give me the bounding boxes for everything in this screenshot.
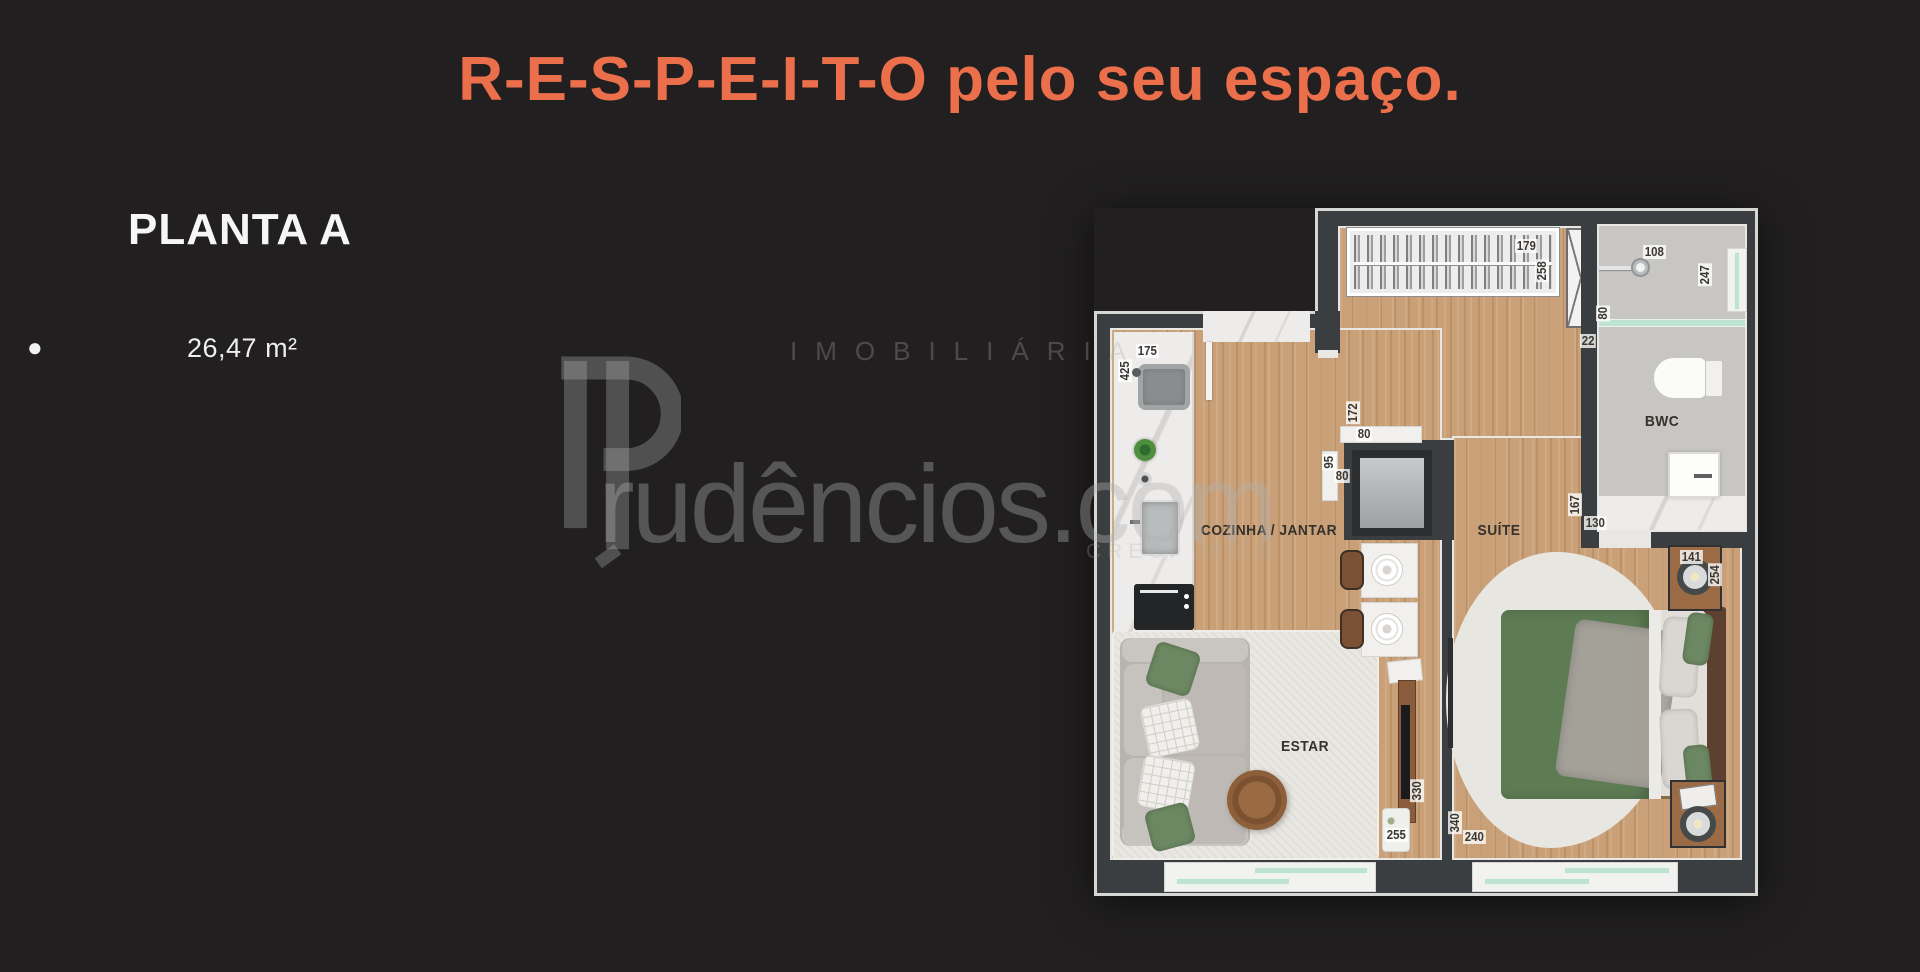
entry-floor: [1203, 311, 1310, 342]
nightstand: [1670, 780, 1726, 848]
window-glass: [1565, 868, 1669, 873]
vanity-sink-icon: [1668, 452, 1720, 498]
microwave-knob: [1184, 604, 1189, 609]
entry-door-leaf: [1206, 342, 1212, 400]
wall-stub: [1315, 311, 1340, 353]
plate-icon: [1371, 554, 1403, 586]
plate-icon: [1371, 613, 1403, 645]
faucet-icon: [1132, 368, 1141, 377]
floor-plan: COZINHA / JANTAR SUÍTE BWC ESTAR 179 258…: [1094, 208, 1758, 896]
dim-label: 255: [1385, 828, 1408, 842]
watermark-tagline: IMOBILIÁRIA: [790, 336, 1144, 367]
toilet-tank-icon: [1705, 360, 1723, 397]
window-glass: [1255, 868, 1367, 873]
dim-label: 330: [1410, 780, 1424, 803]
dim-label: 22: [1580, 334, 1596, 348]
kitchen-sink-icon: [1138, 364, 1190, 410]
dim-label: 340: [1448, 812, 1462, 835]
laundry-sink-icon: [1140, 500, 1180, 556]
window-glass: [1177, 879, 1289, 884]
dim-label: 175: [1136, 344, 1159, 358]
area-value: 26,47 m²: [187, 333, 298, 364]
vanity-handle-icon: [1694, 474, 1712, 478]
dim-label: 95: [1322, 454, 1336, 470]
bathroom-door-threshold: [1599, 530, 1651, 548]
bullet-point: ●: [27, 334, 43, 360]
room-label-bathroom: BWC: [1634, 413, 1689, 430]
coffee-table: [1227, 770, 1287, 830]
bed: [1501, 607, 1726, 802]
bathroom-vanity-counter: [1599, 496, 1745, 530]
dim-label: 425: [1118, 360, 1132, 383]
microwave-door: [1140, 590, 1178, 593]
window-glass: [1485, 879, 1589, 884]
suite-door-leaf: [1448, 638, 1453, 748]
dim-label: 80: [1334, 469, 1350, 483]
closet-rod-icon: [1354, 262, 1552, 265]
dim-label: 179: [1515, 239, 1538, 253]
dim-label: 130: [1584, 516, 1607, 530]
bathroom-window: [1727, 248, 1747, 312]
shelf-horizontal: [1340, 426, 1422, 443]
wall-stub-cap: [1318, 350, 1338, 358]
shower-head-icon: [1631, 258, 1650, 277]
microwave-icon: [1134, 584, 1194, 630]
plaid-pillow: [1139, 697, 1201, 759]
shower-glass-divider: [1599, 320, 1745, 326]
lamp-icon: [1680, 806, 1716, 842]
dim-label: 80: [1356, 427, 1372, 441]
bed-sheet-fold: [1649, 610, 1661, 799]
plan-title: PLANTA A: [128, 205, 352, 255]
window: [1472, 862, 1678, 892]
room-label-kitchen: COZINHA / JANTAR: [1186, 522, 1352, 539]
microwave-knob: [1184, 594, 1189, 599]
dim-label: 240: [1463, 830, 1486, 844]
dining-chair: [1340, 609, 1364, 649]
dim-label: 258: [1535, 260, 1549, 283]
faucet-handle-icon: [1130, 520, 1140, 524]
faucet-icon: [1138, 472, 1152, 486]
fridge-door: [1360, 458, 1424, 528]
room-label-living: ESTAR: [1259, 738, 1351, 755]
room-label-suite: SUÍTE: [1453, 522, 1545, 539]
dim-label: 141: [1680, 550, 1703, 564]
dim-label: 254: [1708, 564, 1722, 587]
dim-label: 80: [1596, 305, 1610, 321]
bathroom-left-wall: [1581, 226, 1599, 548]
dim-label: 247: [1698, 264, 1712, 287]
dim-label: 172: [1346, 402, 1360, 425]
dim-label: 108: [1643, 245, 1666, 259]
prudencios-logo-icon: [549, 340, 681, 572]
plant-icon: [1134, 439, 1156, 461]
dim-label: 167: [1568, 494, 1582, 517]
bathroom-window-glass: [1735, 253, 1739, 309]
toilet-icon: [1653, 357, 1707, 399]
fridge-icon: [1352, 450, 1432, 536]
dining-chair: [1340, 550, 1364, 590]
page-title: R-E-S-P-E-I-T-O pelo seu espaço.: [0, 44, 1920, 115]
window: [1164, 862, 1376, 892]
